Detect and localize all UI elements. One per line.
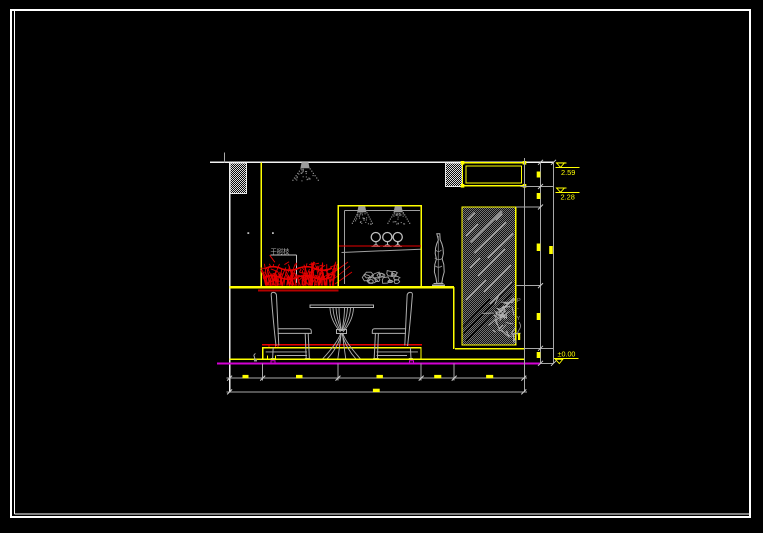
svg-text:2.59: 2.59 bbox=[561, 168, 575, 177]
svg-text:P: P bbox=[517, 298, 521, 304]
svg-text:-: - bbox=[517, 306, 519, 312]
svg-text:干树枝: 干树枝 bbox=[271, 247, 291, 256]
svg-text:2.28: 2.28 bbox=[561, 193, 575, 202]
svg-text:Y: Y bbox=[517, 316, 521, 322]
svg-text:±0.00: ±0.00 bbox=[558, 350, 576, 359]
svg-text:4: 4 bbox=[514, 340, 517, 346]
